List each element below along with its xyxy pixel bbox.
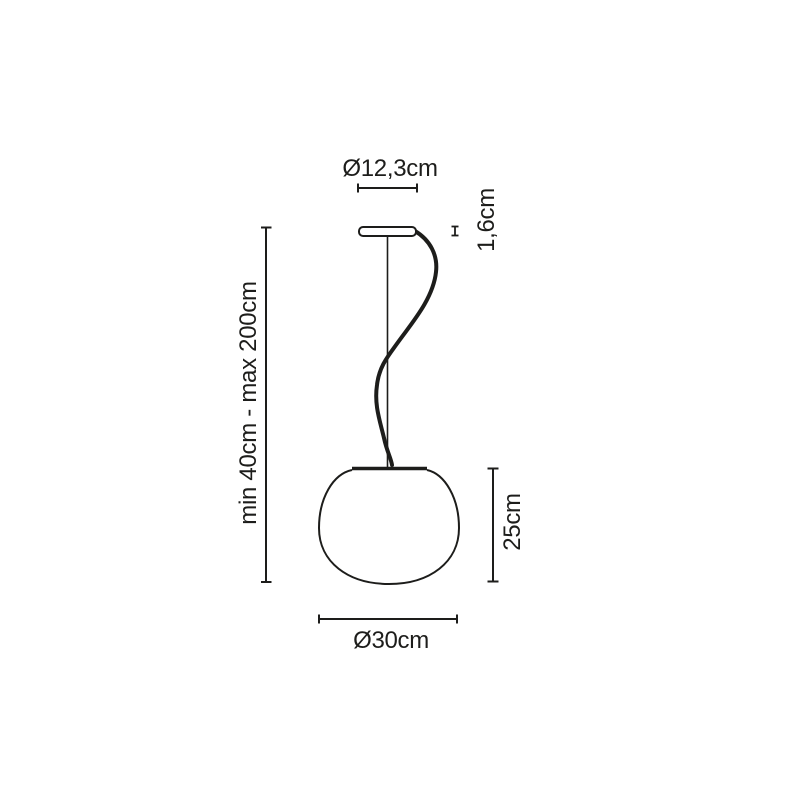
shade-height-dimension-line: [488, 469, 499, 582]
canopy-diameter-label: Ø12,3cm: [342, 157, 437, 181]
ceiling-canopy: [359, 227, 416, 236]
suspension-length-label: min 40cm - max 200cm: [237, 281, 261, 524]
suspension-length-dimension-line: [261, 228, 272, 583]
line-art: [0, 0, 800, 800]
canopy-height-label: 1,6cm: [475, 188, 499, 252]
canopy-height-tick: [452, 227, 459, 236]
shade-diameter-label: Ø30cm: [353, 629, 429, 653]
shade-height-label: 25cm: [501, 493, 525, 551]
canopy-diameter-dimension-line: [358, 184, 417, 193]
shade-diameter-dimension-line: [319, 615, 457, 624]
pendant-lamp-dimension-drawing: Ø12,3cm 1,6cm min 40cm - max 200cm 25cm …: [0, 0, 800, 800]
power-cable: [376, 231, 436, 465]
lamp-shade: [319, 470, 459, 584]
